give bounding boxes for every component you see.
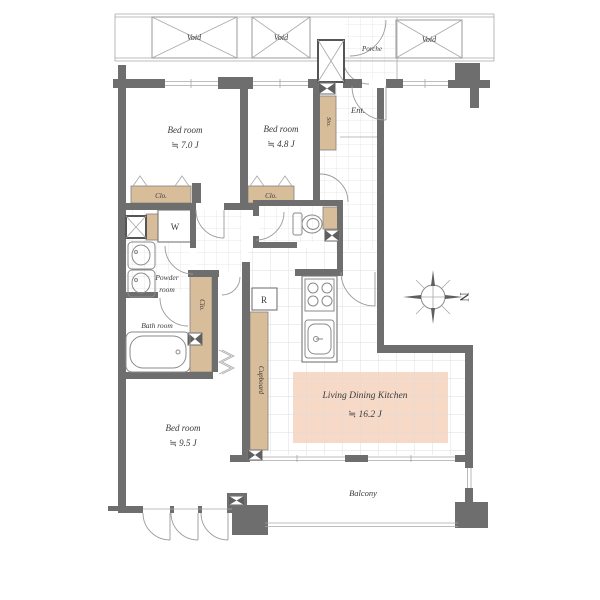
bedroom1-area: ≒ 7.0 J — [171, 140, 199, 150]
floor-plan-drawing: N Void Void Void Porche Ent. Sto. Bed ro… — [0, 0, 600, 600]
compass: N — [403, 270, 472, 324]
bedroom2-name: Bed room — [264, 124, 299, 134]
bedroom3-area: ≒ 9.5 J — [169, 438, 197, 448]
vent — [319, 83, 335, 94]
vent — [325, 230, 339, 241]
compass-north-label: N — [457, 292, 472, 302]
void-label-1: Void — [187, 33, 202, 42]
ldk-area: ≒ 16.2 J — [348, 410, 382, 420]
closet3-label: Clo. — [198, 299, 206, 311]
washer-label: W — [171, 222, 180, 232]
powder-room-label-1: Powder — [154, 273, 178, 282]
porch-label: Porche — [361, 45, 382, 53]
small-cabinet — [146, 214, 158, 240]
cupboard-label: Cupboard — [257, 366, 265, 395]
bedroom3-name: Bed room — [166, 423, 201, 433]
void-label-2: Void — [274, 33, 289, 42]
toilet-cabinet — [323, 207, 338, 229]
kitchen-counter — [302, 276, 337, 362]
bedroom2-area: ≒ 4.8 J — [267, 139, 295, 149]
storage-label: Sto. — [325, 117, 332, 127]
closet2-label: Clo. — [265, 192, 277, 200]
entrance-label: Ent. — [350, 105, 365, 115]
closet-3-body — [190, 276, 212, 372]
refrigerator-label: R — [261, 295, 267, 305]
bedroom1-name: Bed room — [168, 125, 203, 135]
powder-room-label-2: room — [159, 285, 175, 294]
void-label-3: Void — [422, 35, 437, 44]
ldk-name: Living Dining Kitchen — [322, 391, 408, 401]
bath-room-label: Bath room — [141, 321, 173, 330]
bathtub — [126, 332, 190, 372]
vent — [248, 450, 262, 460]
vent — [229, 496, 244, 505]
void-band — [115, 14, 494, 79]
balcony-label: Balcony — [349, 488, 377, 498]
floor-plan: N Void Void Void Porche Ent. Sto. Bed ro… — [0, 0, 600, 600]
closet1-label: Clo. — [155, 192, 167, 200]
